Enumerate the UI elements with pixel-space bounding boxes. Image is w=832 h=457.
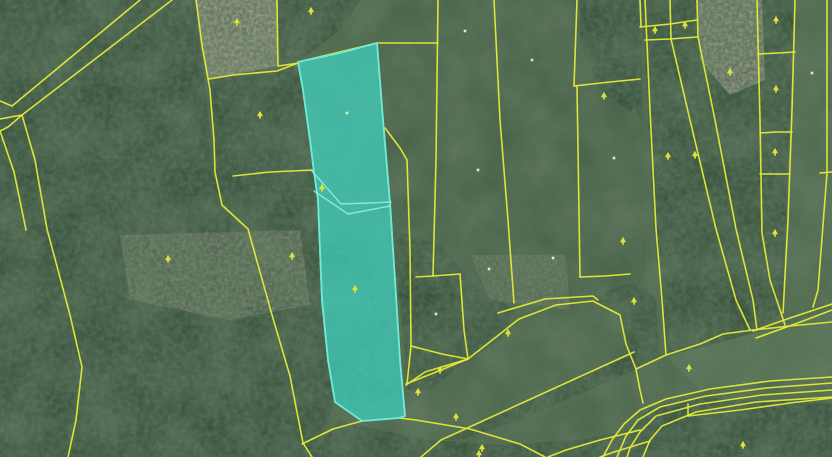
land-use-dot-icon [613,157,616,160]
parcel-boundary-line [820,172,832,173]
land-use-dot-icon [811,72,814,75]
parcel-boundary-line [670,0,671,39]
land-use-dot-icon [346,112,349,115]
terrain-grain [0,0,832,457]
land-use-dot-icon [552,257,555,260]
parcel-boundary-line [640,0,641,27]
parcel-boundary-line [697,0,698,37]
land-use-dot-icon [488,268,491,271]
map-viewport[interactable] [0,0,832,457]
land-use-dot-icon [464,30,467,33]
land-use-dot-icon [477,169,480,172]
aerial-cadastral-map[interactable] [0,0,832,457]
terrain-texture-layer [0,0,832,457]
land-use-dot-icon [531,59,534,62]
land-use-dot-icon [435,313,438,316]
